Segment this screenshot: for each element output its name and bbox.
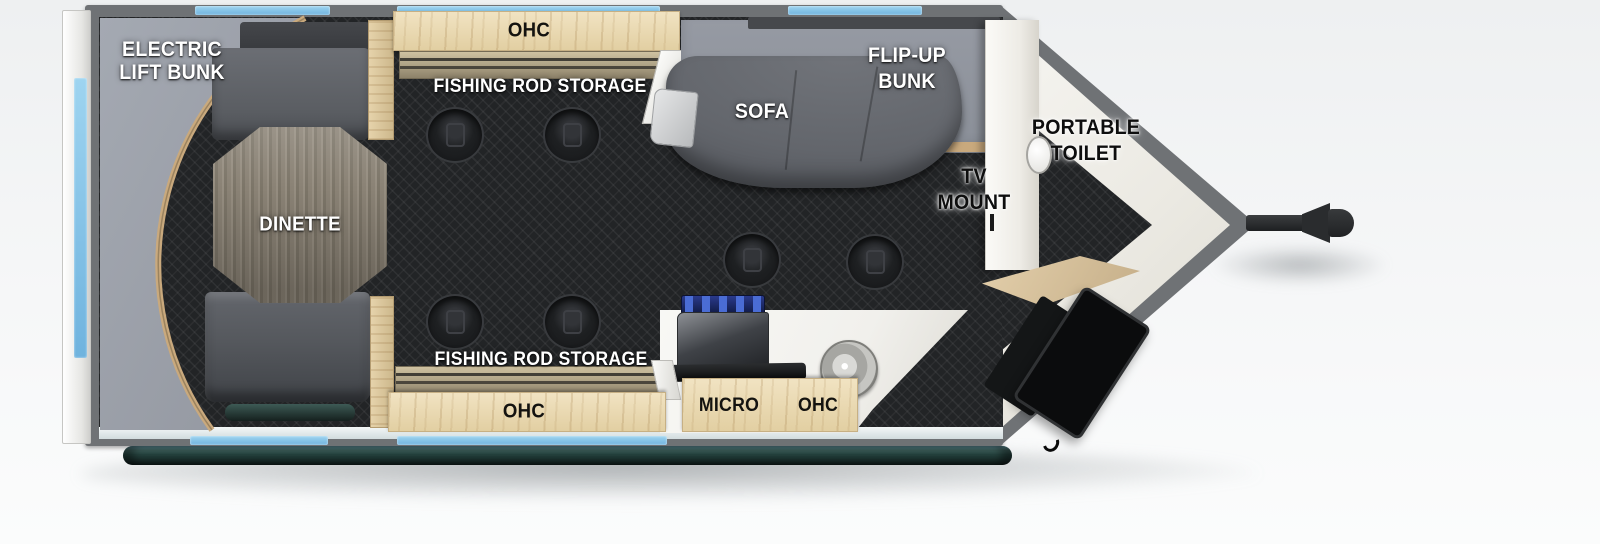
- portable-toilet-fixture: [1026, 136, 1052, 174]
- micro-label: MICRO: [699, 395, 759, 417]
- hitch-shadow: [1210, 245, 1390, 285]
- top-window-3: [788, 6, 922, 15]
- sofa-armrest: [649, 88, 699, 148]
- dinette-bench-bottom: [205, 292, 370, 402]
- fishing-rod-storage-bottom-label: FISHING ROD STORAGE: [434, 349, 647, 371]
- pod-slot-icon: [446, 123, 465, 147]
- wood-panel-top: [368, 20, 394, 140]
- pod-slot-icon: [563, 123, 582, 147]
- ohc-top-label: OHC: [508, 20, 550, 43]
- floor-pod: [846, 234, 904, 290]
- door-latch: [1040, 431, 1062, 454]
- floor-pod: [543, 107, 601, 163]
- hitch-arrow: [1302, 203, 1330, 243]
- floor-pod: [543, 294, 601, 350]
- pod-slot-icon: [563, 310, 582, 334]
- portable-toilet-label-line2: TOILET: [1051, 142, 1122, 166]
- tv-mount-label-line1: TV: [961, 165, 987, 189]
- hitch-coupler: [1328, 209, 1354, 237]
- rear-window: [74, 78, 87, 358]
- trailer-floorplan: ELECTRIC LIFT BUNK OHC FISHING ROD STORA…: [0, 0, 1600, 544]
- dinette-bench-top: [212, 48, 370, 140]
- flip-up-bunk-label-line1: FLIP-UP: [868, 44, 946, 68]
- bumper-rail: [123, 446, 1012, 465]
- portable-toilet-label-line1: PORTABLE: [1032, 116, 1140, 140]
- bottom-window-1: [190, 436, 328, 445]
- sofa-label: SOFA: [735, 100, 789, 124]
- pod-slot-icon: [446, 310, 465, 334]
- pod-slot-icon: [866, 250, 885, 274]
- fishing-rod-storage-top-label: FISHING ROD STORAGE: [433, 76, 646, 98]
- dinette-pedestal: [225, 404, 355, 421]
- pod-slot-icon: [743, 248, 762, 272]
- electric-lift-bunk-label-line1: ELECTRIC: [122, 38, 222, 62]
- floor-pod: [426, 294, 484, 350]
- ohc-bottom-label: OHC: [503, 401, 545, 424]
- floor-pod: [723, 232, 781, 288]
- tv-mount-tick: [990, 214, 994, 231]
- floor-pod: [426, 107, 484, 163]
- flip-up-bunk-label-line2: BUNK: [878, 70, 936, 94]
- tv-mount-label-line2: MOUNT: [937, 191, 1010, 215]
- bottom-window-2: [397, 436, 667, 445]
- electric-lift-bunk-label-line2: LIFT BUNK: [119, 61, 225, 85]
- fishing-rod-rack-top: [399, 51, 673, 79]
- kitchen-ohc-label: OHC: [798, 395, 838, 417]
- dinette-label: DINETTE: [259, 214, 341, 237]
- flip-up-bunk-top-slab: [748, 17, 1000, 29]
